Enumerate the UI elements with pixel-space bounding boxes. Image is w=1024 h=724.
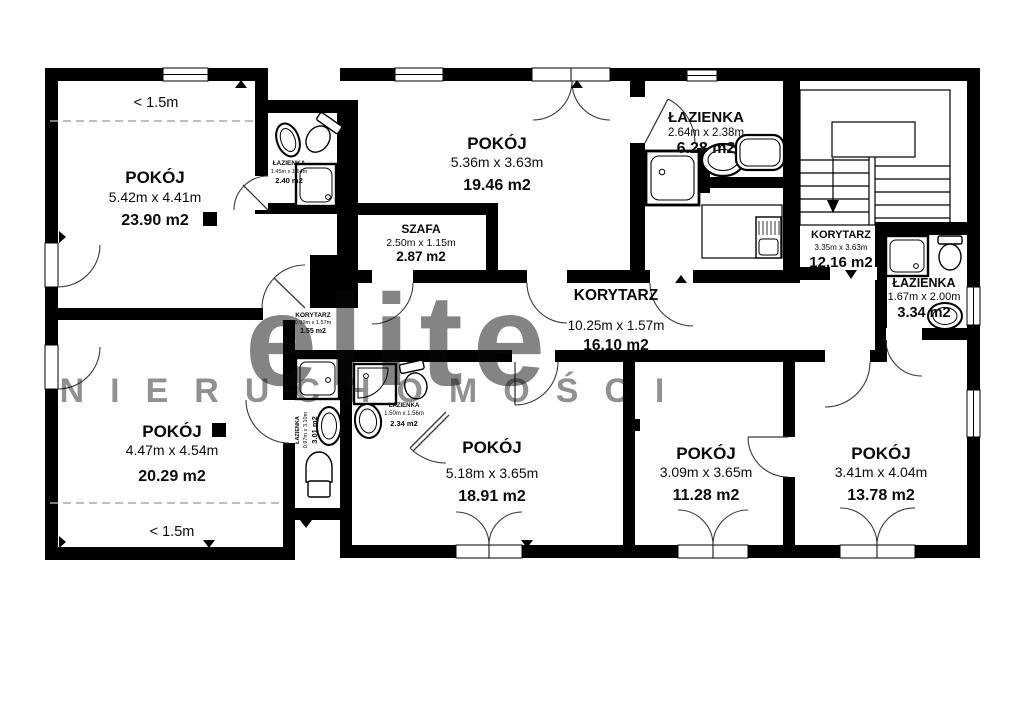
window-top-left bbox=[163, 68, 208, 81]
toilet bbox=[306, 452, 332, 497]
stairs-down-arrow bbox=[827, 200, 839, 213]
room-area-label: 16.10 m2 bbox=[583, 337, 649, 354]
room-name-label: POKÓJ bbox=[125, 168, 185, 187]
room-area-label: 3.34 m2 bbox=[897, 305, 950, 321]
room-dims-label: 3.41m x 4.04m bbox=[835, 464, 928, 480]
room-dims-label: 1.67m x 2.00m bbox=[888, 291, 961, 303]
room-dims-label: 1.45m x 1.64m bbox=[271, 169, 308, 175]
window-top-mid bbox=[395, 68, 443, 81]
bathroom-top-left-fixtures bbox=[272, 112, 343, 206]
room-area-label: 2.40 m2 bbox=[275, 176, 303, 185]
room-dims-label: 10.25m x 1.57m bbox=[568, 318, 665, 333]
shower bbox=[886, 236, 928, 276]
room-name-label: ŁAZIENKA bbox=[892, 276, 955, 290]
room-name-label: POKÓJ bbox=[462, 438, 522, 457]
room-name-label: POKÓJ bbox=[467, 134, 527, 153]
window-right-2 bbox=[967, 390, 980, 437]
toilet bbox=[299, 112, 342, 158]
wall-nub bbox=[630, 419, 640, 431]
room-area-label: 18.91 m2 bbox=[458, 488, 526, 505]
marker-square bbox=[203, 212, 217, 226]
sink bbox=[272, 120, 304, 159]
kitchen-counter bbox=[702, 205, 782, 258]
room-dims-label: 0.99m x 1.57m bbox=[295, 320, 332, 326]
room-name-label: KORYTARZ bbox=[574, 287, 659, 304]
room-name-label: SZAFA bbox=[401, 222, 441, 236]
room-dims-label: 1.50m x 1.56m bbox=[384, 411, 424, 417]
room-dims-label: 5.18m x 3.65m bbox=[446, 465, 539, 481]
room-area-label: 12.16 m2 bbox=[809, 254, 872, 271]
room-name-label: POKÓJ bbox=[851, 444, 911, 463]
room-name-label: ŁAZIENKA bbox=[295, 416, 301, 444]
room-dims-label: 5.36m x 3.63m bbox=[451, 154, 544, 170]
room-name-label: ŁAZIENKA bbox=[389, 403, 420, 409]
staircase bbox=[800, 90, 950, 225]
room-area-label: 2.87 m2 bbox=[396, 249, 446, 264]
room-area-label: 3.01 m2 bbox=[310, 416, 319, 444]
room-name-label: POKÓJ bbox=[142, 422, 202, 441]
door-leaf-left-1 bbox=[45, 243, 58, 287]
room-dims-label: 3.35m x 3.63m bbox=[815, 243, 868, 252]
room-name-label: POKÓJ bbox=[676, 444, 736, 463]
shower bbox=[646, 151, 699, 205]
room-dims-label: 3.09m x 3.65m bbox=[660, 464, 753, 480]
window-right-1 bbox=[967, 287, 980, 325]
room-dims-label: 2.50m x 1.15m bbox=[386, 237, 456, 249]
room-name-label: KORYTARZ bbox=[811, 229, 871, 241]
balcony-door-2 bbox=[678, 545, 748, 558]
room-area-label: 11.28 m2 bbox=[673, 487, 740, 504]
balcony-door-top bbox=[532, 68, 610, 81]
room-area-label: 19.46 m2 bbox=[463, 177, 531, 194]
room-dims-label: 2.64m x 2.38m bbox=[668, 127, 744, 139]
bathtub bbox=[736, 135, 784, 170]
balcony-door-3 bbox=[840, 545, 915, 558]
room-name-label: KORYTARZ bbox=[295, 312, 330, 319]
door-leaf-left-2 bbox=[45, 345, 58, 389]
toilet bbox=[938, 236, 962, 270]
room-area-label: 20.29 m2 bbox=[138, 468, 206, 485]
room-name-label: ŁAZIENKA bbox=[273, 160, 306, 167]
room-note: < 1.5m bbox=[134, 95, 179, 111]
watermark-subtitle: NIERUCHOMOŚCI bbox=[60, 372, 691, 410]
room-area-label: 13.78 m2 bbox=[847, 487, 915, 504]
room-area-label: 2.34 m2 bbox=[390, 419, 418, 428]
room-area-label: 6.28 m2 bbox=[677, 140, 736, 157]
window-bath-top bbox=[687, 70, 717, 81]
room-note: < 1.5m bbox=[150, 524, 195, 540]
floor-plan: elite NIERUCHOMOŚCI < 1.5m POKÓJ 5.42m x… bbox=[0, 0, 1024, 724]
room-dims-label: 5.42m x 4.41m bbox=[109, 189, 202, 205]
room-area-label: 23.90 m2 bbox=[121, 212, 189, 229]
balcony-door-1 bbox=[456, 545, 522, 558]
room-dims-label: 0.97m x 3.10m bbox=[303, 411, 309, 448]
marker-square bbox=[212, 423, 226, 437]
room-dims-label: 4.47m x 4.54m bbox=[126, 442, 219, 458]
room-area-label: 1.55 m2 bbox=[300, 328, 326, 335]
room-name-label: ŁAZIENKA bbox=[668, 109, 744, 126]
